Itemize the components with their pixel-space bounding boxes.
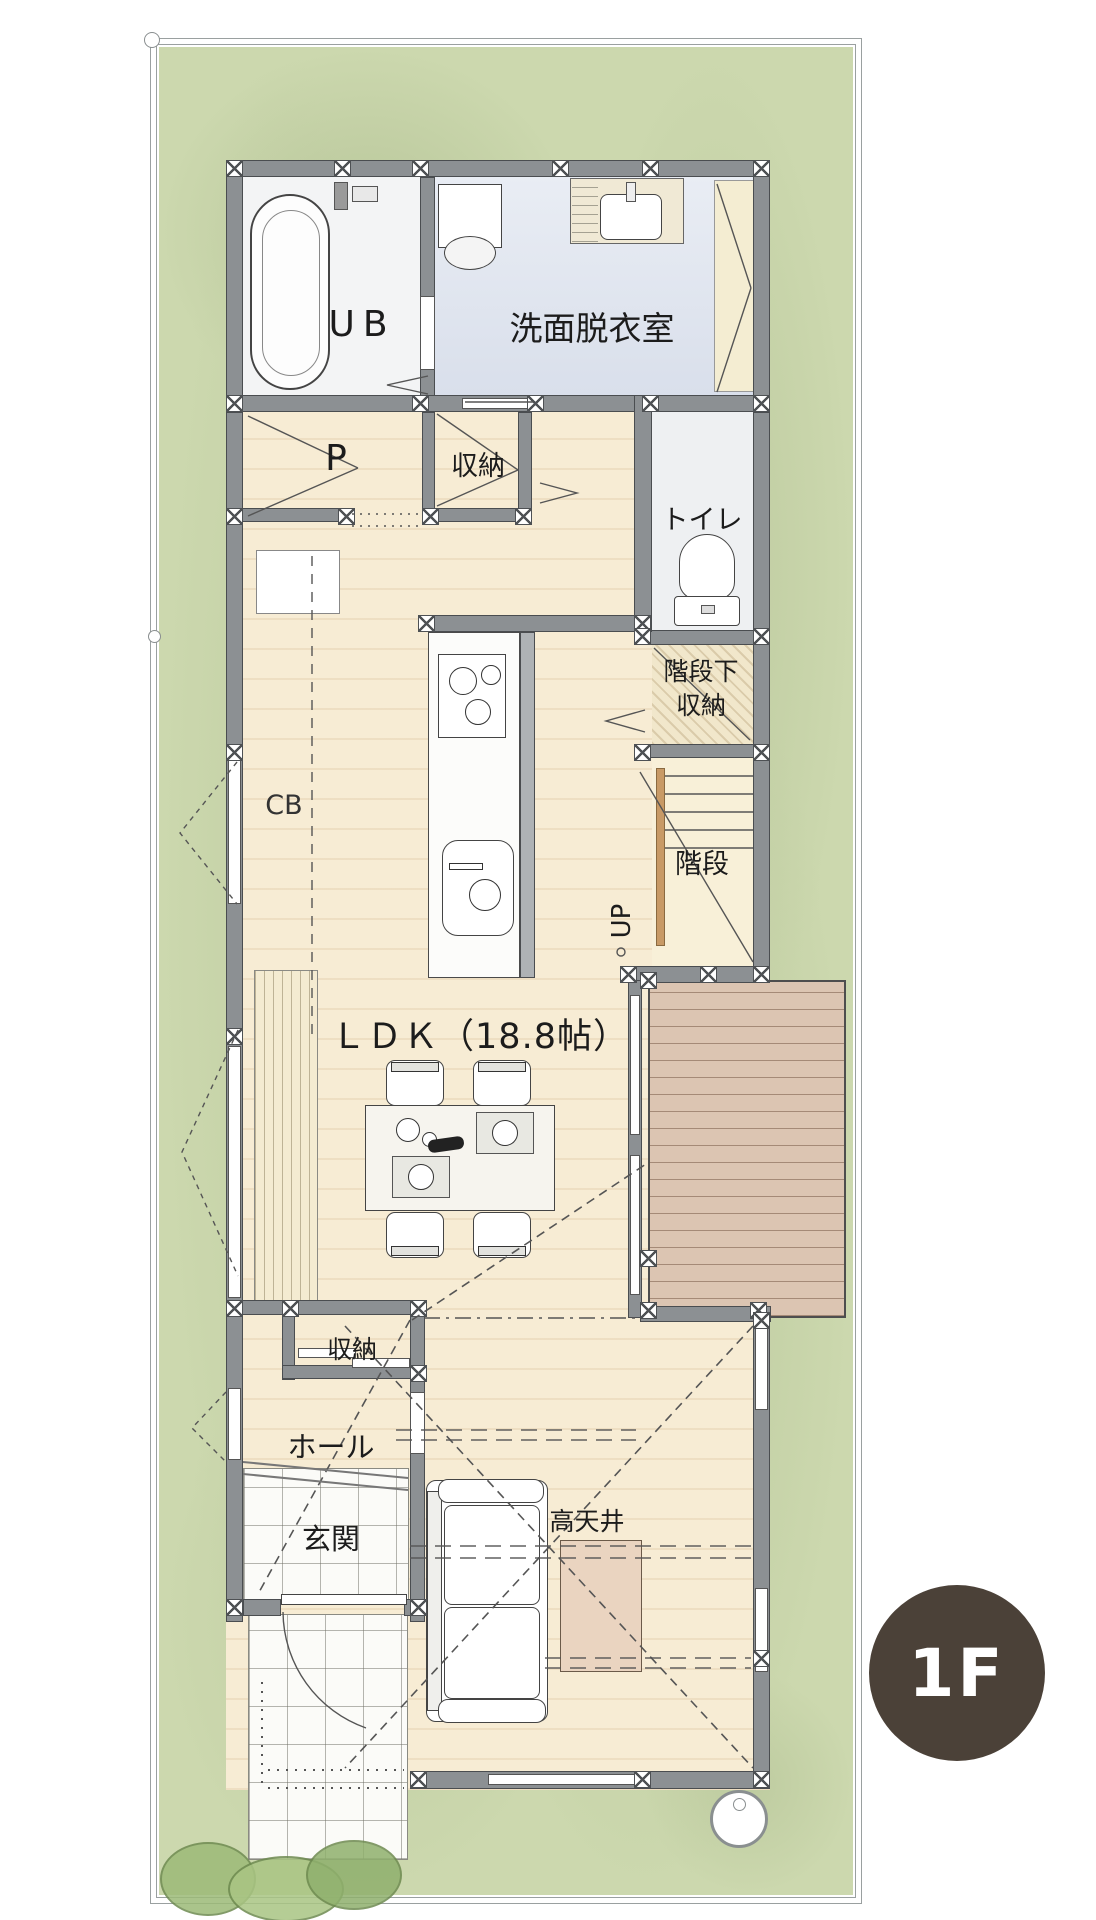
post-icon	[226, 395, 243, 412]
shower-shelf-icon	[352, 186, 378, 202]
post-icon	[634, 744, 651, 761]
post-icon	[642, 395, 659, 412]
hall-door	[410, 1392, 425, 1454]
chair	[386, 1060, 444, 1106]
chair	[473, 1060, 531, 1106]
room-label-toilet: トイレ	[662, 498, 743, 537]
room-label-storage-upper: 収納	[451, 444, 505, 483]
post-icon	[753, 628, 770, 645]
sofa-back	[427, 1491, 442, 1711]
plate-icon	[408, 1164, 434, 1190]
coffee-table	[560, 1540, 642, 1672]
washroom-closet	[714, 180, 754, 392]
stove-burner-icon	[449, 667, 477, 695]
post-icon	[640, 1302, 657, 1319]
post-icon	[753, 160, 770, 177]
boundary-marker-icon	[144, 32, 160, 48]
post-icon	[422, 508, 439, 525]
boundary-marker-icon	[148, 630, 161, 643]
teapot-icon	[396, 1118, 420, 1142]
post-icon	[753, 395, 770, 412]
post-icon	[226, 744, 243, 761]
sofa-cushion	[444, 1505, 540, 1605]
deck-sliding-door	[630, 995, 640, 1135]
window	[228, 758, 241, 904]
wall	[422, 412, 435, 522]
sofa-cushion	[444, 1607, 540, 1699]
post-icon	[753, 1650, 770, 1667]
post-icon	[412, 160, 429, 177]
post-icon	[410, 1771, 427, 1788]
sofa-armrest	[438, 1699, 546, 1723]
stove-burner-icon	[465, 699, 491, 725]
post-icon	[753, 966, 770, 983]
vanity-faucet-icon	[626, 182, 636, 202]
room-label-understair-2: 収納	[676, 686, 726, 722]
window	[755, 1326, 768, 1410]
room-label-hall: ホール	[287, 1424, 374, 1466]
post-icon	[642, 160, 659, 177]
post-icon	[753, 1312, 770, 1329]
toilet-tank	[674, 596, 740, 626]
post-icon	[410, 1365, 427, 1382]
post-icon	[410, 1300, 427, 1317]
post-icon	[640, 972, 657, 989]
wall	[634, 395, 652, 645]
stair-rail	[656, 768, 665, 946]
post-icon	[527, 395, 544, 412]
kitchen-stove	[438, 654, 506, 738]
post-icon	[410, 1599, 427, 1616]
post-icon	[700, 966, 717, 983]
wood-deck	[648, 980, 846, 1318]
wall	[243, 1599, 281, 1616]
high-ceiling-label: 高天井	[549, 1502, 624, 1538]
post-icon	[753, 744, 770, 761]
post-icon	[412, 395, 429, 412]
plate-icon	[492, 1120, 518, 1146]
wall	[226, 160, 770, 177]
post-icon	[552, 160, 569, 177]
sink-basin-icon	[469, 879, 501, 911]
post-icon	[226, 1028, 243, 1045]
manhole-icon	[710, 1790, 768, 1848]
post-icon	[640, 1250, 657, 1267]
manhole-handle-icon	[733, 1798, 746, 1811]
wall	[634, 630, 770, 645]
sink-faucet-icon	[449, 863, 483, 870]
shrub	[306, 1840, 402, 1910]
toilet-fixture	[679, 534, 735, 600]
floor-plan-page: UB 洗面脱衣室 P 収納 トイレ 階段下 収納 階段 UP CB ＬＤＫ（18…	[0, 0, 1096, 1920]
room-label-ldk: ＬＤＫ（18.8帖）	[331, 1008, 629, 1059]
deck-sliding-door	[630, 1155, 640, 1295]
wall	[753, 160, 770, 412]
chair	[473, 1212, 531, 1258]
kitchen-back-panel	[520, 632, 535, 978]
wall	[418, 615, 652, 632]
window-bench-planks	[254, 970, 318, 1314]
washing-machine-drum	[444, 236, 496, 270]
wall	[410, 1300, 425, 1622]
post-icon	[282, 1300, 299, 1317]
room-label-washroom: 洗面脱衣室	[510, 302, 675, 350]
post-icon	[634, 1771, 651, 1788]
post-icon	[515, 508, 532, 525]
room-label-pantry: P	[325, 438, 347, 479]
porch-tile-floor	[248, 1614, 408, 1860]
post-icon	[338, 508, 355, 525]
wall	[518, 412, 532, 522]
vanity-shelf	[572, 180, 598, 242]
post-icon	[620, 966, 637, 983]
room-label-storage-lower: 収納	[327, 1330, 377, 1366]
dining-table	[365, 1105, 555, 1211]
post-icon	[418, 615, 435, 632]
toilet-button-icon	[701, 605, 715, 614]
floor-badge: 1F	[869, 1585, 1045, 1761]
wall	[226, 508, 354, 522]
window	[228, 1388, 241, 1460]
post-icon	[753, 1771, 770, 1788]
kitchen-sink	[442, 840, 514, 936]
room-label-ub: UB	[328, 304, 395, 345]
wall	[753, 412, 770, 983]
washroom-door	[462, 398, 536, 409]
shower-unit-icon	[334, 182, 348, 210]
sofa	[426, 1480, 548, 1722]
wall	[420, 177, 435, 412]
stairs-up-label: UP	[607, 904, 637, 939]
post-icon	[634, 628, 651, 645]
post-icon	[226, 160, 243, 177]
chair	[386, 1212, 444, 1258]
stove-burner-icon	[481, 665, 501, 685]
post-icon	[226, 508, 243, 525]
post-icon	[334, 160, 351, 177]
room-label-understair-1: 階段下	[663, 652, 738, 688]
window	[488, 1774, 638, 1785]
post-icon	[226, 1599, 243, 1616]
wall	[634, 744, 770, 758]
ub-door	[420, 296, 435, 370]
wall	[226, 160, 243, 412]
floor-badge-text: 1F	[908, 1635, 1005, 1712]
room-label-stairs: 階段	[675, 842, 729, 881]
cb-label: CB	[265, 790, 302, 821]
bathtub	[250, 194, 330, 390]
post-icon	[226, 1300, 243, 1317]
room-label-entrance: 玄関	[302, 1516, 360, 1558]
entry-door-leaf	[281, 1594, 407, 1605]
bathtub-inner	[262, 210, 320, 376]
refrigerator-space	[256, 550, 340, 614]
wall	[226, 1300, 424, 1315]
window	[228, 1046, 241, 1298]
sofa-armrest	[438, 1479, 544, 1503]
